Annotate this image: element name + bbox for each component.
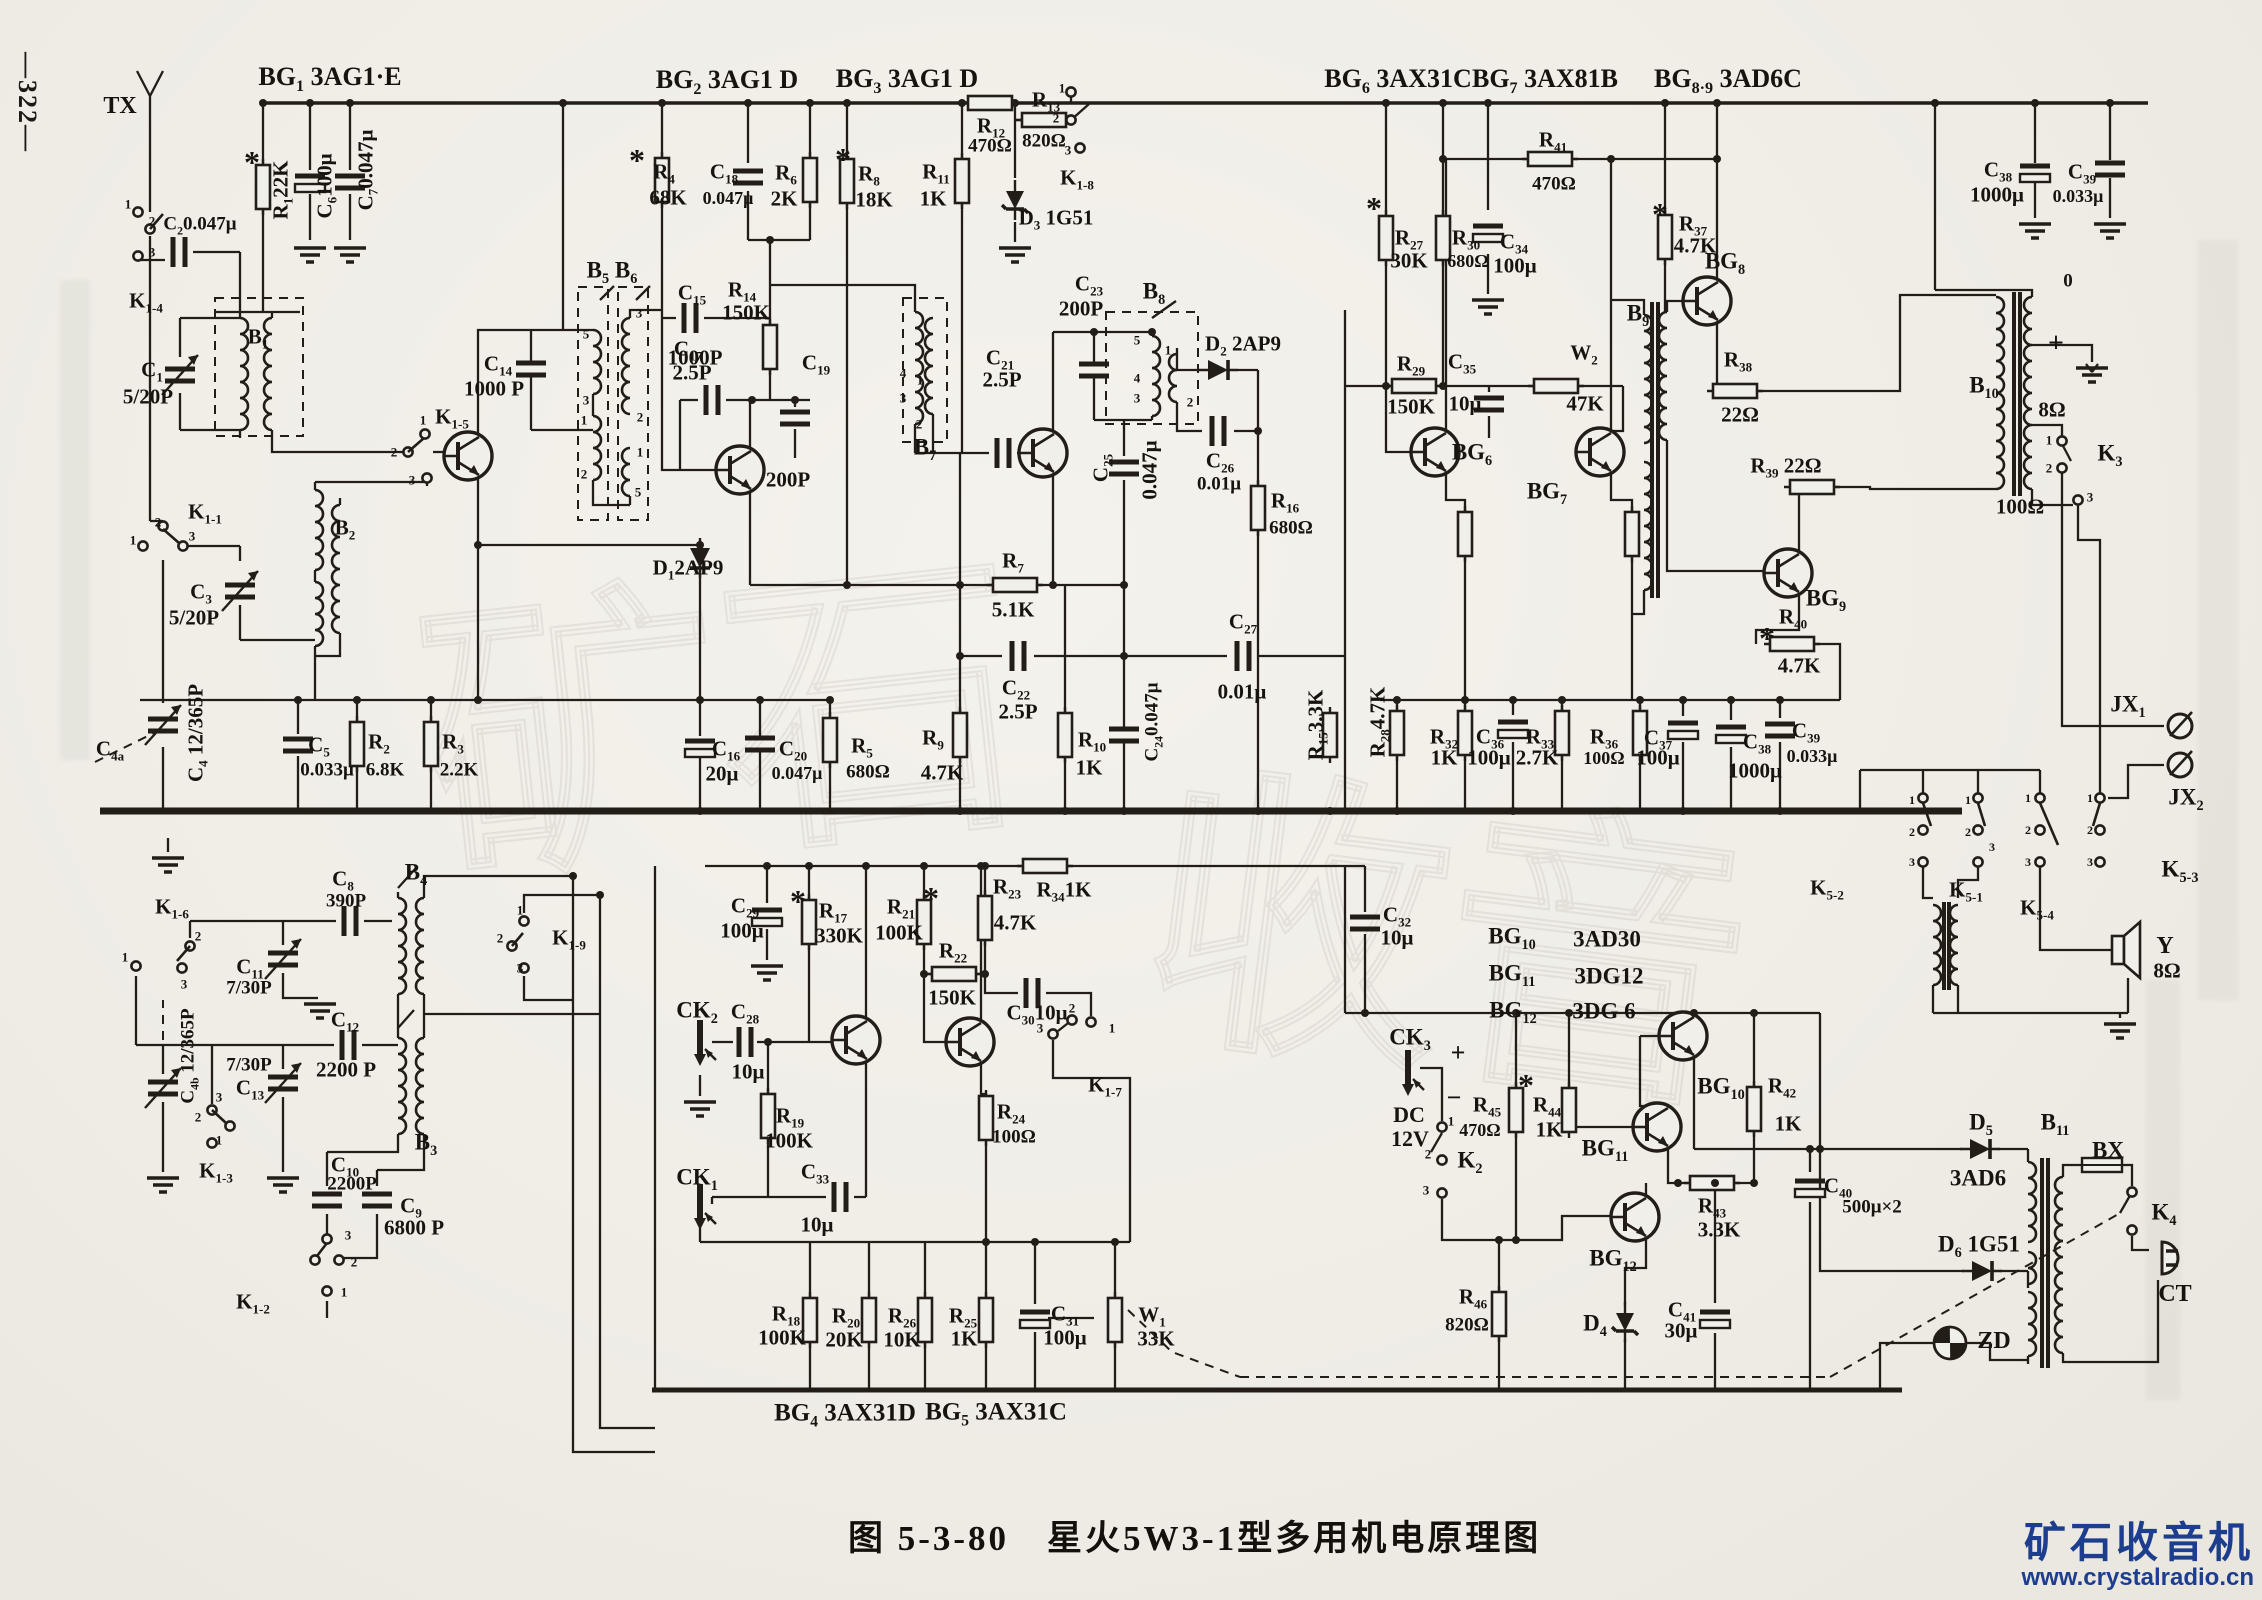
component-label: 1K — [920, 189, 947, 210]
component-label: C34 — [1500, 232, 1528, 253]
component-label: R17 — [819, 901, 847, 922]
component-label: 0.047μ — [703, 189, 754, 207]
component-label: 5/20P — [123, 387, 173, 408]
component-label: 1 — [125, 198, 132, 211]
component-label: 1K — [1775, 1114, 1802, 1135]
component-label: C1 — [141, 360, 163, 381]
component-label: * — [1518, 1069, 1534, 1101]
component-label: B4 — [405, 861, 427, 884]
component-label: BG10 — [1697, 1075, 1744, 1098]
component-label: K1-7 — [1088, 1075, 1122, 1096]
component-label: 12V — [1391, 1128, 1429, 1150]
component-label: 2 — [1069, 1002, 1076, 1015]
component-label: 1 — [122, 951, 129, 964]
component-label: C32 — [1383, 905, 1411, 926]
component-label: 22Ω — [1721, 405, 1759, 426]
component-label: R26 — [888, 1306, 916, 1327]
component-label: 100K — [875, 923, 923, 944]
component-label: C33 — [801, 1162, 829, 1183]
component-label: R284.7K — [1368, 687, 1389, 758]
component-label: + — [1451, 1040, 1466, 1066]
component-label: 3.3K — [1698, 1220, 1741, 1241]
component-label: K1-3 — [199, 1161, 233, 1182]
component-label: 2.5P — [672, 363, 711, 384]
component-label: D2 2AP9 — [1205, 334, 1281, 355]
component-label: 100Ω — [1583, 749, 1624, 767]
component-label: C31 — [1051, 1304, 1079, 1325]
component-label: 6800 P — [384, 1218, 444, 1239]
component-label: 1 — [130, 534, 137, 547]
component-label: * — [1652, 198, 1668, 230]
component-label: 680Ω — [846, 763, 890, 782]
component-label: 1000 P — [464, 379, 524, 400]
component-label: C39 — [2068, 162, 2096, 183]
component-label: 3 — [2087, 856, 2093, 868]
component-label: C13 — [236, 1078, 264, 1099]
component-label: 5/20P — [169, 608, 219, 629]
component-label: R22 — [939, 941, 967, 962]
component-label: D3 1G51 — [1019, 208, 1094, 229]
component-label: 3 — [1423, 1184, 1430, 1197]
component-label: W1 — [1138, 1305, 1166, 1326]
component-label: 30K — [1390, 251, 1427, 272]
component-label: R45 — [1473, 1095, 1501, 1116]
component-label: 1 — [1448, 1115, 1455, 1128]
component-label: C18 — [710, 162, 738, 183]
component-label: 3 — [900, 392, 907, 405]
component-label: R30 — [1452, 228, 1480, 249]
component-label: 7/30P — [226, 979, 271, 998]
component-label: 3DG12 — [1575, 965, 1644, 988]
component-label: 0.01μ — [1197, 475, 1241, 494]
component-label: 2 — [195, 930, 202, 943]
component-label: R29 — [1397, 354, 1425, 375]
component-label: 5 — [635, 486, 642, 499]
component-label: 33K — [1137, 1329, 1174, 1350]
component-label: B9 — [1627, 302, 1649, 325]
component-label: C5 — [308, 735, 330, 756]
component-label: 10μ — [1381, 928, 1414, 949]
component-label: C38 — [1984, 160, 2012, 181]
component-label: R27 — [1395, 228, 1423, 249]
component-label: BG6 3AX31C — [1324, 66, 1471, 92]
component-label: 0.047μ — [772, 764, 823, 782]
component-label: 1 — [1965, 794, 1971, 806]
component-label: 820Ω — [1445, 1316, 1489, 1335]
component-label: R2 — [368, 732, 390, 753]
component-label: 100Ω — [1996, 497, 2044, 518]
watermark-url: www.crystalradio.cn — [2021, 1565, 2254, 1590]
component-label: B7 — [914, 436, 936, 459]
component-label: 3 — [1909, 856, 1915, 868]
component-label: 3 — [636, 307, 643, 320]
component-label: 3 — [149, 246, 156, 259]
component-label: BG1 3AG1·E — [258, 64, 401, 90]
component-label: 2.5P — [998, 702, 1037, 723]
component-label: C16 — [712, 739, 740, 760]
schematic-page: 矿石 收音 — [0, 0, 2262, 1600]
component-label: R37 — [1679, 214, 1707, 235]
component-label: R8 — [858, 164, 880, 185]
component-label: 2 — [2046, 462, 2053, 475]
component-label: BG8·9 3AD6C — [1654, 66, 1802, 92]
component-label: 4 — [1134, 372, 1141, 385]
component-label: DC — [1393, 1104, 1425, 1126]
component-label: C17 — [674, 339, 702, 360]
component-label: 3 — [1065, 144, 1072, 157]
figure-caption: 图 5-3-80 星火5W3-1型多用机电原理图 — [848, 1510, 1541, 1561]
component-label: R21 — [887, 897, 915, 918]
component-label: B2 — [335, 518, 356, 539]
component-label: 2.2K — [440, 761, 479, 780]
schematic-labels: BG1 3AG1·EBG2 3AG1 DBG3 3AG1 DBG6 3AX31C… — [0, 0, 2262, 1600]
component-label: 1 — [2087, 792, 2093, 804]
component-label: K2 — [1457, 1149, 1482, 1172]
component-label: 2 — [351, 1256, 358, 1269]
component-label: K5-4 — [2020, 898, 2054, 919]
page-number: —322— — [14, 52, 40, 153]
component-label: BG3 3AG1 D — [836, 66, 978, 92]
component-label: 470Ω — [1459, 1121, 1500, 1139]
component-label: R20 — [832, 1306, 860, 1327]
component-label: BG7 — [1527, 480, 1567, 503]
component-label: 2.5P — [982, 370, 1021, 391]
component-label: R43 — [1698, 1196, 1726, 1217]
component-label: 3 — [189, 530, 196, 543]
component-label: 2 — [155, 516, 162, 529]
component-label: BG9 — [1806, 587, 1846, 610]
component-label: BG4 3AX31D — [774, 1401, 916, 1426]
component-label: R11 — [922, 162, 949, 183]
component-label: K5-1 — [1949, 880, 1983, 901]
component-label: 10μ — [732, 1062, 765, 1083]
component-label: 390P — [326, 892, 366, 911]
component-label: BG7 3AX81B — [1472, 66, 1618, 92]
watermark-name: 矿石收音机 — [2021, 1521, 2254, 1565]
component-label: R19 — [776, 1106, 804, 1127]
component-label: W2 — [1570, 343, 1598, 364]
component-label: 3 — [583, 394, 590, 407]
component-label: R13 — [1032, 90, 1060, 111]
component-label: 200P — [1059, 299, 1103, 320]
component-label: BG12 — [1489, 999, 1536, 1022]
component-label: B3 — [415, 1131, 437, 1154]
component-label: R40 — [1779, 607, 1807, 628]
component-label: D12AP9 — [653, 558, 724, 579]
component-label: * — [835, 143, 851, 175]
component-label: * — [790, 885, 806, 917]
component-label: 1 — [917, 374, 924, 387]
component-label: BG10 — [1488, 925, 1535, 948]
component-label: 3 — [345, 1229, 352, 1242]
component-label: C6100μ — [315, 153, 336, 218]
component-label: JX2 — [2168, 786, 2203, 809]
component-label: R4 — [653, 162, 675, 183]
component-label: * — [1759, 622, 1775, 654]
component-label: 1 — [517, 904, 524, 917]
component-label: − — [1447, 1085, 1462, 1111]
component-label: C20 — [779, 739, 807, 760]
component-label: R10 — [1078, 730, 1106, 751]
component-label: 2 — [916, 418, 923, 431]
component-label: C12 — [331, 1010, 359, 1031]
component-label: R39 22Ω — [1750, 456, 1821, 477]
component-label: 2 — [1425, 1148, 1432, 1161]
component-label: 0.01μ — [1218, 682, 1267, 703]
component-label: 1 — [420, 414, 427, 427]
component-label: 10K — [883, 1330, 920, 1351]
component-label: C26 — [1206, 451, 1234, 472]
component-label: BG12 — [1589, 1247, 1636, 1270]
component-label: 1000μ — [1728, 761, 1782, 782]
component-label: 8Ω — [2153, 961, 2180, 982]
component-label: 2 — [581, 468, 588, 481]
component-label: K5-2 — [1810, 878, 1844, 899]
component-label: 100K — [758, 1328, 806, 1349]
component-label: C39 — [1792, 721, 1820, 742]
component-label: 1 — [1059, 82, 1066, 95]
component-label: 3 — [1134, 392, 1141, 405]
component-label: Y — [2156, 934, 2173, 958]
component-label: 20K — [825, 1330, 862, 1351]
component-label: R3 — [442, 732, 464, 753]
component-label: CT — [2158, 1282, 2191, 1306]
component-label: D6 1G51 — [1938, 1233, 2020, 1256]
component-label: CK3 — [1389, 1026, 1431, 1049]
component-label: 150K — [1387, 397, 1435, 418]
component-label: R7 — [1002, 551, 1024, 572]
component-label: R153.3K — [1306, 690, 1327, 761]
component-label: 5 — [1134, 334, 1141, 347]
component-label: 4 — [900, 367, 907, 380]
component-label: 7/30P — [226, 1056, 271, 1075]
component-label: C19 — [802, 353, 830, 374]
component-label: 1000μ — [1970, 185, 2024, 206]
component-label: R23 — [993, 877, 1021, 898]
component-label: R9 — [922, 728, 944, 749]
component-label: C41 — [1668, 1300, 1696, 1321]
component-label: 6.8K — [366, 761, 405, 780]
component-label: 1 — [2025, 792, 2031, 804]
component-label: ZD — [1977, 1329, 2010, 1353]
component-label: 330K — [815, 926, 863, 947]
component-label: 2 — [391, 446, 398, 459]
component-label: C25 — [1091, 454, 1112, 482]
component-label: * — [629, 144, 645, 176]
component-label: 3 — [2087, 491, 2094, 504]
component-label: C35 — [1448, 352, 1476, 373]
component-label: 3 — [517, 962, 524, 975]
component-label: 100μ — [720, 921, 763, 942]
component-label: K3 — [2097, 442, 2122, 465]
component-label: 8Ω — [2038, 400, 2065, 421]
component-label: R14 — [728, 280, 756, 301]
component-label: BG8 — [1705, 250, 1745, 273]
component-label: 10μ — [1449, 394, 1482, 415]
component-label: BG2 3AG1 D — [656, 67, 798, 93]
component-label: 2 — [2087, 824, 2093, 836]
component-label: 68K — [649, 188, 686, 209]
component-label: 680Ω — [1447, 252, 1488, 270]
component-label: C27 — [1229, 612, 1257, 633]
component-label: CK2 — [676, 999, 718, 1022]
component-label: 3 — [1989, 841, 1995, 853]
component-label: BG5 3AX31C — [925, 1400, 1067, 1425]
component-label: 1K — [1076, 758, 1103, 779]
component-label: 1 — [637, 446, 644, 459]
component-label: 500μ×2 — [1842, 1198, 1902, 1217]
component-label: BX — [2092, 1139, 2124, 1162]
component-label: C70.047μ — [356, 130, 377, 211]
component-label: R122K — [271, 160, 292, 219]
component-label: 4.7K — [921, 763, 964, 784]
component-label: 100μ — [1493, 256, 1536, 277]
component-label: 2 — [637, 411, 644, 424]
component-label: 100μ — [1467, 748, 1510, 769]
component-label: C28 — [731, 1002, 759, 1023]
component-label: 3AD6 — [1950, 1167, 2006, 1190]
component-label: K1-9 — [552, 928, 586, 949]
component-label: BG6 — [1452, 441, 1492, 464]
component-label: C36 — [1476, 727, 1504, 748]
component-label: 150K — [722, 303, 770, 324]
component-label: R41 — [1539, 130, 1567, 151]
component-label: 470Ω — [968, 137, 1012, 156]
component-label: K1-4 — [129, 291, 163, 312]
component-label: 150K — [928, 988, 976, 1009]
component-label: C38 — [1743, 732, 1771, 753]
component-label: 3DG 6 — [1572, 1000, 1635, 1023]
component-label: R5 — [851, 736, 873, 757]
component-label: B10 — [1969, 374, 1999, 397]
component-label: K1-8 — [1060, 168, 1094, 189]
component-label: R44 — [1533, 1095, 1561, 1116]
component-label: K5-3 — [2162, 858, 2199, 881]
component-label: C11 — [236, 957, 263, 978]
component-label: 2200P — [327, 1175, 377, 1194]
component-label: B1 — [248, 327, 269, 348]
component-label: 3AD30 — [1573, 928, 1641, 951]
component-label: 0.047μ — [1140, 440, 1161, 499]
component-label: R32 — [1430, 727, 1458, 748]
component-label: C15 — [678, 283, 706, 304]
component-label: 680Ω — [1269, 519, 1313, 538]
component-label: 2 — [1909, 826, 1915, 838]
component-label: R36 — [1590, 727, 1618, 748]
component-label: 5.1K — [992, 600, 1035, 621]
component-label: R6 — [775, 163, 797, 184]
component-label: 200P — [766, 470, 810, 491]
component-label: K1-1 — [188, 502, 222, 523]
component-label: * — [1366, 192, 1382, 224]
component-label: 3 — [1037, 1022, 1044, 1035]
component-label: 5 — [583, 328, 590, 341]
component-label: 2 — [497, 932, 504, 945]
component-label: K1-5 — [435, 407, 469, 428]
component-label: C22 — [1002, 678, 1030, 699]
watermark-logo: 矿石收音机 www.crystalradio.cn — [2021, 1521, 2254, 1590]
component-label: 18K — [855, 190, 892, 211]
component-label: C29 — [731, 896, 759, 917]
component-label: BG11 — [1489, 962, 1536, 985]
component-label: R341K — [1036, 880, 1091, 901]
component-label: C14 — [484, 354, 512, 375]
component-label: 2 — [195, 1111, 202, 1124]
component-label: C4 12/365P — [186, 684, 207, 782]
component-label: R25 — [949, 1306, 977, 1327]
component-label: C23 — [1075, 274, 1103, 295]
component-label: + — [2048, 330, 2064, 358]
component-label: 2 — [2025, 824, 2031, 836]
component-label: R38 — [1724, 350, 1752, 371]
component-label: 3 — [409, 474, 416, 487]
component-label: 30μ — [1665, 1321, 1698, 1342]
component-label: R24 — [997, 1102, 1025, 1123]
component-label: C240.047μ — [1143, 682, 1162, 761]
component-label: D4 — [1583, 1312, 1607, 1335]
component-label: 820Ω — [1022, 132, 1066, 151]
component-label: 2 — [1187, 396, 1194, 409]
component-label: C9 — [400, 1196, 422, 1217]
component-label: 2 — [1965, 826, 1971, 838]
component-label: 1 — [1909, 794, 1915, 806]
component-label: TX — [103, 94, 136, 118]
component-label: 3 — [216, 1091, 223, 1104]
component-label: 1 — [341, 1286, 348, 1299]
component-label: 20μ — [706, 764, 739, 785]
component-label: 1 — [216, 1134, 223, 1147]
component-label: 0.033μ — [300, 761, 354, 780]
component-label: * — [923, 882, 939, 914]
component-label: 2.7K — [1516, 748, 1559, 769]
component-label: BG11 — [1582, 1137, 1629, 1160]
component-label: R33 — [1526, 727, 1554, 748]
component-label: C21 — [986, 348, 1014, 369]
component-label: 47K — [1566, 394, 1603, 415]
component-label: C8 — [332, 869, 354, 890]
component-label: C40 — [1824, 1176, 1852, 1197]
component-label: 470Ω — [1532, 175, 1576, 194]
component-label: 4.7K — [1778, 656, 1821, 677]
component-label: 10μ — [801, 1215, 834, 1236]
component-label: C20.047μ — [163, 215, 236, 234]
component-label: D5 — [1969, 1111, 1993, 1134]
component-label: 0.033μ — [1787, 747, 1838, 765]
component-label: R46 — [1459, 1287, 1487, 1308]
component-label: B5 B6 — [587, 259, 638, 282]
component-label: R18 — [772, 1304, 800, 1325]
component-label: 1K — [1431, 748, 1458, 769]
component-label: 3 — [181, 978, 188, 991]
component-label: 1 — [2046, 434, 2053, 447]
component-label: K1-6 — [155, 897, 189, 918]
component-label: 1K — [1536, 1120, 1563, 1141]
component-label: 2 — [149, 215, 156, 228]
component-label: C3 — [190, 582, 212, 603]
component-label: C4a — [96, 739, 124, 760]
component-label: R12 — [977, 116, 1005, 137]
component-label: 2200 P — [316, 1060, 376, 1081]
component-label: B11 — [2041, 1111, 2070, 1134]
component-label: 0 — [2063, 272, 2073, 291]
component-label: C10 — [331, 1155, 359, 1176]
component-label: 2 — [1053, 112, 1060, 125]
component-label: 0.033μ — [2053, 187, 2104, 205]
component-label: C4b 12/365P — [179, 1008, 198, 1103]
component-label: 1K — [951, 1329, 978, 1350]
component-label: 1 — [1109, 1022, 1116, 1035]
component-label: 2K — [771, 189, 798, 210]
